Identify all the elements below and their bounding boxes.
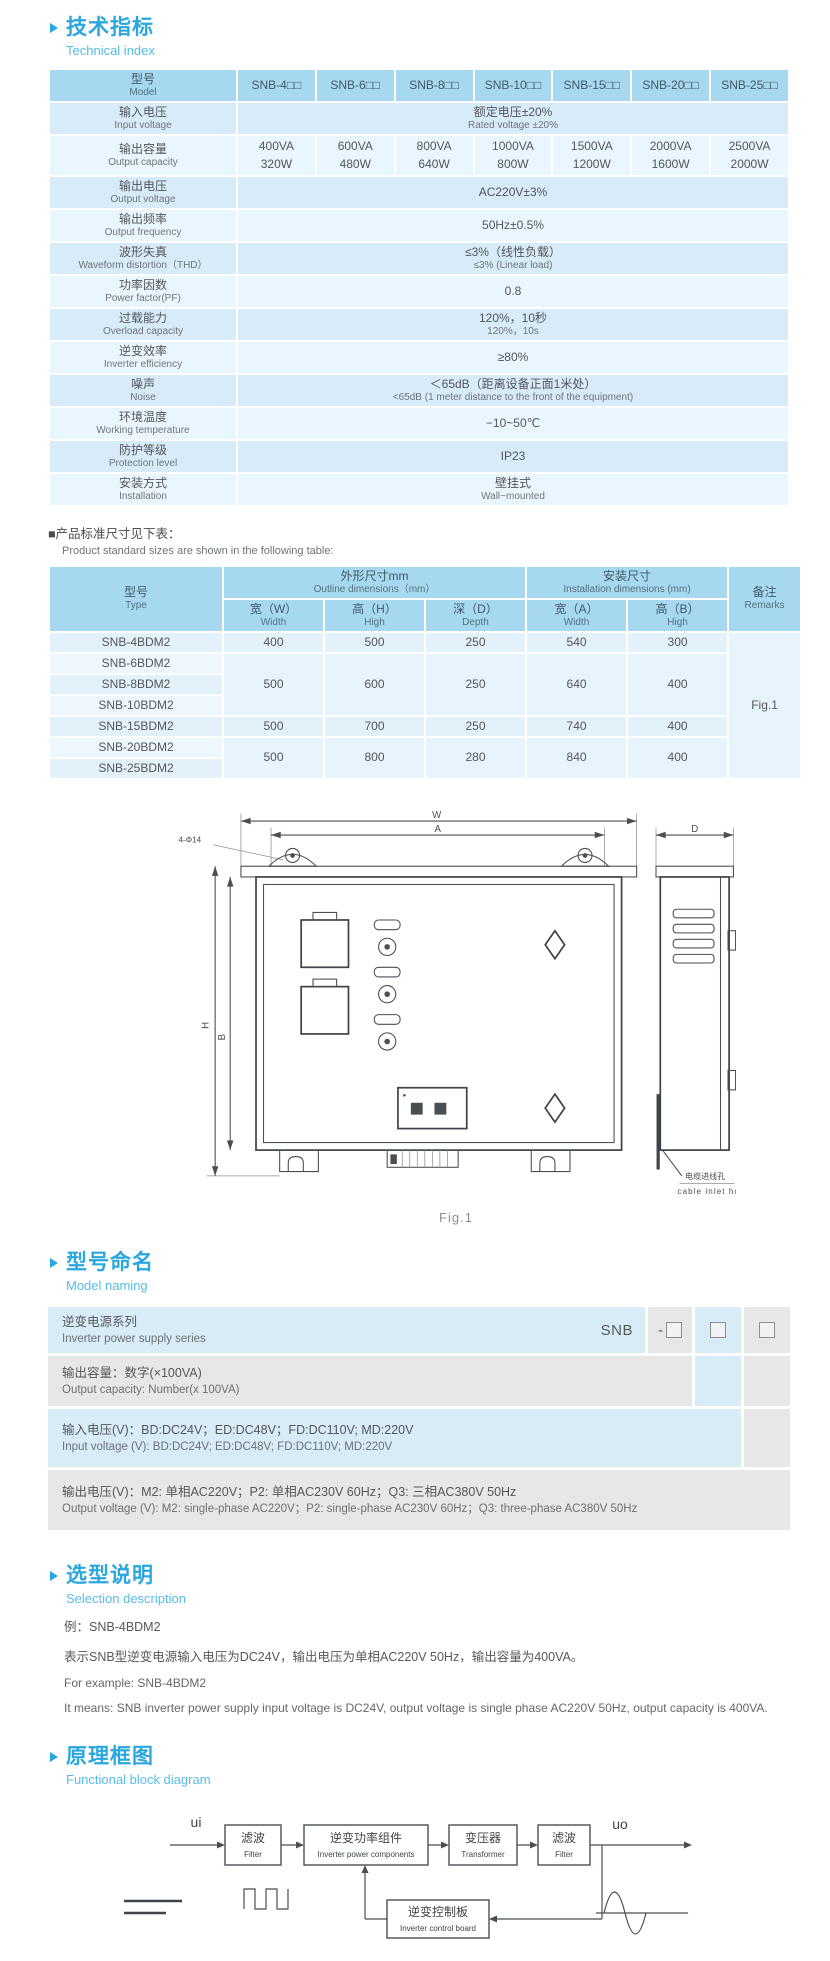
spec-value-line: ≤3%（线性负载） bbox=[240, 245, 786, 260]
naming-label-en: Output voltage (V): M2: single-phase AC2… bbox=[62, 1501, 637, 1517]
spec-row: 防护等级Protection levelIP23 bbox=[50, 441, 788, 472]
spec-row: 功率因数Power factor(PF)0.8 bbox=[50, 276, 788, 307]
naming-label-zh: 逆变电源系列 bbox=[62, 1313, 206, 1332]
naming-label-en: Inverter power supply series bbox=[62, 1331, 206, 1347]
spec-value-merged: IP23 bbox=[238, 441, 788, 472]
spec-row-label: 噪声Noise bbox=[50, 375, 236, 406]
spec-value-merged: ＜65dB（距离设备正面1米处）<65dB (1 meter distance … bbox=[238, 375, 788, 406]
spec-header-model-col: SNB-20□□ bbox=[632, 70, 709, 101]
spec-row-label-en: Working temperature bbox=[52, 425, 234, 437]
dim-header-col-zh: 高（H） bbox=[327, 602, 422, 617]
fig1-drawing: W A 4-Φ14 bbox=[176, 806, 736, 1206]
naming-strip bbox=[744, 1409, 790, 1467]
dim-value: 700 bbox=[327, 719, 422, 734]
spec-value-merged: 壁挂式Wall−mounted bbox=[238, 474, 788, 505]
dim-value: 300 bbox=[630, 635, 725, 650]
filter-box-en: Filter bbox=[244, 1850, 262, 1859]
spec-value-line: 600VA bbox=[319, 138, 392, 155]
dimensions-table: 型号Type外形尺寸mmOutline dimensions（mm）安装尺寸In… bbox=[48, 565, 802, 780]
model-name: SNB-6□□ bbox=[319, 78, 392, 93]
spec-row-label: 安装方式Installation bbox=[50, 474, 236, 505]
dim-value-cell: 400 bbox=[628, 654, 727, 715]
spec-row-label: 波形失真Waveform distortion（THD） bbox=[50, 243, 236, 274]
spec-value-line: 400VA bbox=[240, 138, 313, 155]
model-name: SNB-25□□ bbox=[713, 78, 786, 93]
section-technical-header: 技术指标 Technical index bbox=[48, 16, 790, 58]
section-title-zh: 选型说明 bbox=[66, 1564, 186, 1588]
naming-code-box-2 bbox=[695, 1307, 741, 1353]
selection-example-zh: 例：SNB-4BDM2 bbox=[64, 1616, 790, 1635]
naming-code-box-1: - bbox=[648, 1307, 692, 1353]
spec-value-line: 2000VA bbox=[634, 138, 707, 155]
dim-value-cell: 700 bbox=[325, 717, 424, 736]
dim-value-cell: 300 bbox=[628, 633, 727, 652]
naming-strip bbox=[695, 1356, 741, 1406]
dim-header-col-en: High bbox=[630, 617, 725, 629]
model-name: SNB-10□□ bbox=[477, 78, 550, 93]
dim-value-cell: 500 bbox=[224, 717, 323, 736]
selection-description: 例：SNB-4BDM2 表示SNB型逆变电源输入电压为DC24V，输出电压为单相… bbox=[64, 1616, 790, 1715]
spec-value-line: 120%，10秒 bbox=[240, 311, 786, 326]
dim-header-type: 型号Type bbox=[50, 567, 222, 631]
dim-value-cell: 500 bbox=[224, 738, 323, 778]
diagram-output-label: uo bbox=[612, 1816, 628, 1832]
dim-value-cell: 400 bbox=[628, 717, 727, 736]
spec-value-merged: −10~50℃ bbox=[238, 408, 788, 439]
dim-value: 400 bbox=[226, 635, 321, 650]
spec-value-line: 120%，10s bbox=[240, 326, 786, 338]
spec-row-label-zh: 输出电压 bbox=[52, 179, 234, 194]
dim-value: 840 bbox=[529, 750, 624, 765]
dim-row: SNB-4BDM2400500250540300Fig.1 bbox=[50, 633, 800, 652]
spec-row-label: 环境温度Working temperature bbox=[50, 408, 236, 439]
dim-label-h: H bbox=[201, 1022, 212, 1029]
dim-row-type: SNB-10BDM2 bbox=[50, 696, 222, 715]
catalog-page: 技术指标 Technical index 型号ModelSNB-4□□SNB-6… bbox=[0, 0, 830, 1961]
section-naming-header: 型号命名 Model naming bbox=[48, 1251, 790, 1293]
dim-value-cell: 640 bbox=[527, 654, 626, 715]
dim-label-d: D bbox=[691, 824, 698, 835]
spec-value-merged: AC220V±3% bbox=[238, 177, 788, 208]
spec-value-line: 50Hz±0.5% bbox=[240, 218, 786, 233]
spec-value-line: ≤3% (Linear load) bbox=[240, 260, 786, 272]
fig1-block: W A 4-Φ14 bbox=[176, 806, 736, 1225]
fig1-caption: Fig.1 bbox=[176, 1210, 736, 1225]
output-filter-box-zh: 滤波 bbox=[552, 1831, 576, 1845]
control-board-box-en: Inverter control board bbox=[400, 1924, 476, 1933]
spec-value-cell: 600VA480W bbox=[317, 136, 394, 175]
spec-value-line: 1200W bbox=[555, 156, 628, 173]
spec-row: 过载能力Overload capacity120%，10秒120%，10s bbox=[50, 309, 788, 340]
spec-row-label-en: Noise bbox=[52, 392, 234, 404]
spec-value-line: Rated voltage ±20% bbox=[240, 120, 786, 132]
naming-label-zh: 输出容量：数字(×100VA) bbox=[62, 1364, 239, 1383]
spec-row-label-zh: 功率因数 bbox=[52, 278, 234, 293]
dim-value-cell: 600 bbox=[325, 654, 424, 715]
spec-header-model-col: SNB-6□□ bbox=[317, 70, 394, 101]
spec-header-model-col: SNB-4□□ bbox=[238, 70, 315, 101]
section-arrow-icon bbox=[50, 23, 58, 33]
naming-label-en: Input voltage (V): BD:DC24V; ED:DC48V; F… bbox=[62, 1439, 413, 1455]
dim-value: 250 bbox=[428, 677, 523, 692]
dim-header-outline: 外形尺寸mmOutline dimensions（mm） bbox=[224, 567, 525, 598]
inverter-power-box-zh: 逆变功率组件 bbox=[330, 1830, 402, 1845]
spec-value-line: 480W bbox=[319, 156, 392, 173]
section-arrow-icon bbox=[50, 1752, 58, 1762]
spec-row-label-en: Power factor(PF) bbox=[52, 293, 234, 305]
spec-row-label-zh: 过载能力 bbox=[52, 311, 234, 326]
spec-row-label-zh: 输入电压 bbox=[52, 105, 234, 120]
dim-header-remarks-en: Remarks bbox=[731, 600, 798, 612]
section-arrow-icon bbox=[50, 1571, 58, 1581]
dim-value: 540 bbox=[529, 635, 624, 650]
spec-value-cell: 2000VA1600W bbox=[632, 136, 709, 175]
spec-header-model-col: SNB-10□□ bbox=[475, 70, 552, 101]
spec-value-line: 320W bbox=[240, 156, 313, 173]
dim-value-cell: 500 bbox=[224, 654, 323, 715]
dim-value: 400 bbox=[630, 677, 725, 692]
spec-row-label-en: Waveform distortion（THD） bbox=[52, 260, 234, 272]
cable-hole-label-zh: 电缆进线孔 bbox=[685, 1171, 725, 1181]
spec-value-line: 2000W bbox=[713, 156, 786, 173]
spec-row-label-zh: 安装方式 bbox=[52, 476, 234, 491]
naming-strip bbox=[744, 1356, 790, 1406]
spec-row-label-zh: 输出容量 bbox=[52, 142, 234, 157]
dim-value-cell: 250 bbox=[426, 717, 525, 736]
spec-row-label-en: Overload capacity bbox=[52, 326, 234, 338]
spec-value-line: 1000VA bbox=[477, 138, 550, 155]
dim-value-cell: 400 bbox=[224, 633, 323, 652]
transformer-box-zh: 变压器 bbox=[465, 1830, 501, 1845]
spec-value-cell: 1500VA1200W bbox=[553, 136, 630, 175]
model-code-prefix: SNB bbox=[601, 1322, 645, 1339]
spec-row: 输出容量Output capacity400VA320W600VA480W800… bbox=[50, 136, 788, 175]
spec-value-line: 1600W bbox=[634, 156, 707, 173]
dim-row-type: SNB-6BDM2 bbox=[50, 654, 222, 673]
section-technical-titles: 技术指标 Technical index bbox=[66, 16, 155, 58]
dim-header-outline-zh: 外形尺寸mm bbox=[226, 569, 523, 584]
spec-header-model-col: SNB-25□□ bbox=[711, 70, 788, 101]
dim-value: 640 bbox=[529, 677, 624, 692]
dim-label-w: W bbox=[432, 810, 442, 821]
dim-row-type: SNB-8BDM2 bbox=[50, 675, 222, 694]
section-naming-titles: 型号命名 Model naming bbox=[66, 1251, 154, 1293]
spec-value-merged: ≤3%（线性负载）≤3% (Linear load) bbox=[238, 243, 788, 274]
section-diagram-titles: 原理框图 Functional block diagram bbox=[66, 1745, 211, 1787]
spec-value-merged: 额定电压±20%Rated voltage ±20% bbox=[238, 103, 788, 134]
dim-value-cell: 800 bbox=[325, 738, 424, 778]
dim-value: 600 bbox=[327, 677, 422, 692]
dim-value: 400 bbox=[630, 750, 725, 765]
spec-header-row: 型号ModelSNB-4□□SNB-6□□SNB-8□□SNB-10□□SNB-… bbox=[50, 70, 788, 101]
dim-row-type: SNB-25BDM2 bbox=[50, 759, 222, 778]
dim-row: SNB-6BDM2500600250640400 bbox=[50, 654, 800, 673]
naming-label-en: Output capacity: Number(x 100VA) bbox=[62, 1382, 239, 1398]
section-title-en: Selection description bbox=[66, 1591, 186, 1606]
sizes-note-en: Product standard sizes are shown in the … bbox=[62, 545, 790, 557]
spec-value-line: 额定电压±20% bbox=[240, 105, 786, 120]
naming-row-output-voltage-label: 输出电压(V)：M2: 单相AC220V；P2: 单相AC230V 60Hz；Q… bbox=[48, 1483, 637, 1518]
spec-row-label-en: Output frequency bbox=[52, 227, 234, 239]
block-diagram: ui 滤波 Filter 逆变功率组件 Inverter power compo… bbox=[104, 1801, 790, 1941]
spec-row-label: 输出电压Output voltage bbox=[50, 177, 236, 208]
dim-value-cell: 540 bbox=[527, 633, 626, 652]
dim-header-install: 安装尺寸Installation dimensions (mm) bbox=[527, 567, 727, 598]
spec-row-label: 功率因数Power factor(PF) bbox=[50, 276, 236, 307]
dim-header-col-zh: 深（D） bbox=[428, 602, 523, 617]
naming-label-zh: 输出电压(V)：M2: 单相AC220V；P2: 单相AC230V 60Hz；Q… bbox=[62, 1483, 637, 1502]
spec-value-merged: ≥80% bbox=[238, 342, 788, 373]
section-diagram-header: 原理框图 Functional block diagram bbox=[48, 1745, 790, 1787]
spec-value-cell: 800VA640W bbox=[396, 136, 473, 175]
dim-value: 400 bbox=[630, 719, 725, 734]
spec-row-label-zh: 输出频率 bbox=[52, 212, 234, 227]
model-naming-grid: 逆变电源系列 Inverter power supply series SNB … bbox=[48, 1307, 790, 1530]
section-title-zh: 技术指标 bbox=[66, 16, 155, 40]
model-name: SNB-8□□ bbox=[398, 78, 471, 93]
naming-row-input-voltage-label: 输入电压(V)：BD:DC24V；ED:DC48V；FD:DC110V; MD:… bbox=[48, 1421, 413, 1456]
spec-value-line: 2500VA bbox=[713, 138, 786, 155]
dim-value-cell: 740 bbox=[527, 717, 626, 736]
spec-row-label-en: Protection level bbox=[52, 458, 234, 470]
dim-type-name: SNB-10BDM2 bbox=[52, 698, 220, 713]
dim-label-holes: 4-Φ14 bbox=[179, 835, 202, 844]
code-placeholder-box bbox=[666, 1322, 682, 1338]
spec-value-merged: 50Hz±0.5% bbox=[238, 210, 788, 241]
spec-value-cell: 400VA320W bbox=[238, 136, 315, 175]
spec-row: 输出电压Output voltageAC220V±3% bbox=[50, 177, 788, 208]
model-code-dash: - bbox=[658, 1322, 663, 1339]
dim-header-install-en: Installation dimensions (mm) bbox=[529, 584, 725, 596]
section-title-zh: 原理框图 bbox=[66, 1745, 211, 1769]
spec-row: 安装方式Installation壁挂式Wall−mounted bbox=[50, 474, 788, 505]
spec-value-line: 800W bbox=[477, 156, 550, 173]
dim-row-type: SNB-15BDM2 bbox=[50, 717, 222, 736]
dim-row: SNB-20BDM2500800280840400 bbox=[50, 738, 800, 757]
dim-header-col: 高（B）High bbox=[628, 600, 727, 631]
spec-value-line: Wall−mounted bbox=[240, 491, 786, 503]
output-filter-box-en: Filter bbox=[555, 1850, 573, 1859]
spec-row-label-zh: 逆变效率 bbox=[52, 344, 234, 359]
dim-header-col-zh: 宽（W） bbox=[226, 602, 321, 617]
dim-header-type-en: Type bbox=[52, 600, 220, 612]
dim-value: 800 bbox=[327, 750, 422, 765]
spec-row-label-en: Input voltage bbox=[52, 120, 234, 132]
sizes-note: ■产品标准尺寸见下表： Product standard sizes are s… bbox=[48, 523, 790, 557]
spec-header-model-label-zh: 型号 bbox=[52, 72, 234, 87]
dim-header-col: 宽（W）Width bbox=[224, 600, 323, 631]
spec-row: 噪声Noise＜65dB（距离设备正面1米处）<65dB (1 meter di… bbox=[50, 375, 788, 406]
spec-row-label-en: Output voltage bbox=[52, 194, 234, 206]
dim-value-cell: 250 bbox=[426, 633, 525, 652]
dim-header-col-en: Width bbox=[226, 617, 321, 629]
dim-value: 500 bbox=[226, 719, 321, 734]
spec-value-line: 640W bbox=[398, 156, 471, 173]
dim-header-install-zh: 安装尺寸 bbox=[529, 569, 725, 584]
spec-row: 波形失真Waveform distortion（THD）≤3%（线性负载）≤3%… bbox=[50, 243, 788, 274]
spec-row-label: 防护等级Protection level bbox=[50, 441, 236, 472]
dim-value: 500 bbox=[226, 677, 321, 692]
cable-hole-label-en: cable inlet hole bbox=[678, 1187, 736, 1196]
naming-row-output-voltage: 输出电压(V)：M2: 单相AC220V；P2: 单相AC230V 60Hz；Q… bbox=[48, 1470, 790, 1530]
dim-type-name: SNB-25BDM2 bbox=[52, 761, 220, 776]
code-placeholder-box bbox=[759, 1322, 775, 1338]
dim-header-remarks: 备注Remarks bbox=[729, 567, 800, 631]
dim-type-name: SNB-6BDM2 bbox=[52, 656, 220, 671]
dim-row-type: SNB-4BDM2 bbox=[50, 633, 222, 652]
dim-value: 500 bbox=[327, 635, 422, 650]
spec-row-label-en: Installation bbox=[52, 491, 234, 503]
dim-remarks-cell: Fig.1 bbox=[729, 633, 800, 778]
naming-row-series: 逆变电源系列 Inverter power supply series SNB bbox=[48, 1307, 645, 1353]
spec-header-model-col: SNB-8□□ bbox=[396, 70, 473, 101]
dim-value: 250 bbox=[428, 635, 523, 650]
selection-example-en: For example: SNB-4BDM2 bbox=[64, 1676, 790, 1690]
spec-value-line: IP23 bbox=[240, 449, 786, 464]
spec-value-line: ≥80% bbox=[240, 350, 786, 365]
spec-value-line: 0.8 bbox=[240, 284, 786, 299]
spec-row-label-en: Inverter efficiency bbox=[52, 359, 234, 371]
dim-value-cell: 840 bbox=[527, 738, 626, 778]
code-placeholder-box bbox=[710, 1322, 726, 1338]
section-selection-header: 选型说明 Selection description bbox=[48, 1564, 790, 1606]
naming-row-input-voltage: 输入电压(V)：BD:DC24V；ED:DC48V；FD:DC110V; MD:… bbox=[48, 1409, 741, 1467]
filter-box-zh: 滤波 bbox=[241, 1831, 265, 1845]
spec-header-model-col: SNB-15□□ bbox=[553, 70, 630, 101]
dim-value-cell: 400 bbox=[628, 738, 727, 778]
dim-type-name: SNB-4BDM2 bbox=[52, 635, 220, 650]
dimensions-table-body: 型号Type外形尺寸mmOutline dimensions（mm）安装尺寸In… bbox=[50, 567, 800, 778]
inverter-power-box-en: Inverter power components bbox=[318, 1850, 415, 1859]
dim-header-col: 宽（A）Width bbox=[527, 600, 626, 631]
spec-row-label-zh: 防护等级 bbox=[52, 443, 234, 458]
dim-header-row-1: 型号Type外形尺寸mmOutline dimensions（mm）安装尺寸In… bbox=[50, 567, 800, 598]
spec-row-label-zh: 噪声 bbox=[52, 377, 234, 392]
dim-header-col-en: High bbox=[327, 617, 422, 629]
spec-value-line: 800VA bbox=[398, 138, 471, 155]
sizes-note-zh: ■产品标准尺寸见下表： bbox=[48, 523, 790, 542]
spec-value-cell: 2500VA2000W bbox=[711, 136, 788, 175]
spec-value-line: −10~50℃ bbox=[240, 416, 786, 431]
dim-header-col-en: Width bbox=[529, 617, 624, 629]
dim-header-col-zh: 高（B） bbox=[630, 602, 725, 617]
model-name: SNB-20□□ bbox=[634, 78, 707, 93]
section-title-en: Functional block diagram bbox=[66, 1772, 211, 1787]
spec-table-body: 型号ModelSNB-4□□SNB-6□□SNB-8□□SNB-10□□SNB-… bbox=[50, 70, 788, 505]
section-title-en: Technical index bbox=[66, 43, 155, 58]
dim-header-col-en: Depth bbox=[428, 617, 523, 629]
spec-row-label: 过载能力Overload capacity bbox=[50, 309, 236, 340]
model-name: SNB-15□□ bbox=[555, 78, 628, 93]
naming-code-box-3 bbox=[744, 1307, 790, 1353]
dim-type-name: SNB-8BDM2 bbox=[52, 677, 220, 692]
selection-meaning-zh: 表示SNB型逆变电源输入电压为DC24V，输出电压为单相AC220V 50Hz，… bbox=[64, 1646, 790, 1665]
spec-row-label: 输出容量Output capacity bbox=[50, 136, 236, 175]
dim-label-b: B bbox=[217, 1034, 228, 1040]
naming-row-series-label: 逆变电源系列 Inverter power supply series bbox=[48, 1313, 206, 1348]
section-arrow-icon bbox=[50, 1258, 58, 1268]
dim-value: 250 bbox=[428, 719, 523, 734]
naming-label-zh: 输入电压(V)：BD:DC24V；ED:DC48V；FD:DC110V; MD:… bbox=[62, 1421, 413, 1440]
spec-value-line: 1500VA bbox=[555, 138, 628, 155]
spec-header-model-label: 型号Model bbox=[50, 70, 236, 101]
model-name: SNB-4□□ bbox=[240, 78, 313, 93]
dim-header-col: 高（H）High bbox=[325, 600, 424, 631]
spec-row-label: 输入电压Input voltage bbox=[50, 103, 236, 134]
spec-value-line: 壁挂式 bbox=[240, 476, 786, 491]
dim-value: 280 bbox=[428, 750, 523, 765]
dim-remarks-value: Fig.1 bbox=[731, 698, 798, 713]
dim-row-type: SNB-20BDM2 bbox=[50, 738, 222, 757]
block-diagram-svg: ui 滤波 Filter 逆变功率组件 Inverter power compo… bbox=[104, 1801, 744, 1941]
dim-header-col: 深（D）Depth bbox=[426, 600, 525, 631]
dim-type-name: SNB-20BDM2 bbox=[52, 740, 220, 755]
spec-value-merged: 0.8 bbox=[238, 276, 788, 307]
spec-row: 逆变效率Inverter efficiency≥80% bbox=[50, 342, 788, 373]
dim-row: SNB-15BDM2500700250740400 bbox=[50, 717, 800, 736]
spec-row-label-zh: 波形失真 bbox=[52, 245, 234, 260]
dim-label-a: A bbox=[434, 824, 441, 835]
spec-row-label-zh: 环境温度 bbox=[52, 410, 234, 425]
section-selection-titles: 选型说明 Selection description bbox=[66, 1564, 186, 1606]
dim-header-col-zh: 宽（A） bbox=[529, 602, 624, 617]
dim-header-remarks-zh: 备注 bbox=[731, 585, 798, 600]
spec-header-model-label-en: Model bbox=[52, 87, 234, 99]
naming-row-capacity-label: 输出容量：数字(×100VA) Output capacity: Number(… bbox=[48, 1364, 239, 1399]
dim-header-type-zh: 型号 bbox=[52, 585, 220, 600]
spec-value-line: AC220V±3% bbox=[240, 185, 786, 200]
spec-value-cell: 1000VA800W bbox=[475, 136, 552, 175]
spec-row: 输出频率Output frequency50Hz±0.5% bbox=[50, 210, 788, 241]
spec-value-merged: 120%，10秒120%，10s bbox=[238, 309, 788, 340]
spec-row: 输入电压Input voltage额定电压±20%Rated voltage ±… bbox=[50, 103, 788, 134]
section-title-zh: 型号命名 bbox=[66, 1251, 154, 1275]
spec-row-label: 输出频率Output frequency bbox=[50, 210, 236, 241]
spec-value-line: <65dB (1 meter distance to the front of … bbox=[240, 392, 786, 404]
naming-row-capacity: 输出容量：数字(×100VA) Output capacity: Number(… bbox=[48, 1356, 692, 1406]
dim-value-cell: 500 bbox=[325, 633, 424, 652]
diagram-input-label: ui bbox=[191, 1814, 202, 1830]
dim-value: 740 bbox=[529, 719, 624, 734]
dim-value: 500 bbox=[226, 750, 321, 765]
dim-header-outline-en: Outline dimensions（mm） bbox=[226, 584, 523, 596]
dim-value-cell: 250 bbox=[426, 654, 525, 715]
dim-type-name: SNB-15BDM2 bbox=[52, 719, 220, 734]
spec-table: 型号ModelSNB-4□□SNB-6□□SNB-8□□SNB-10□□SNB-… bbox=[48, 68, 790, 507]
spec-value-line: ＜65dB（距离设备正面1米处） bbox=[240, 377, 786, 392]
spec-row-label-en: Output capacity bbox=[52, 157, 234, 169]
control-board-box-zh: 逆变控制板 bbox=[408, 1904, 468, 1919]
transformer-box-en: Transformer bbox=[461, 1850, 505, 1859]
selection-meaning-en: It means: SNB inverter power supply inpu… bbox=[64, 1701, 790, 1715]
section-title-en: Model naming bbox=[66, 1278, 154, 1293]
spec-row: 环境温度Working temperature−10~50℃ bbox=[50, 408, 788, 439]
dim-value-cell: 280 bbox=[426, 738, 525, 778]
spec-row-label: 逆变效率Inverter efficiency bbox=[50, 342, 236, 373]
